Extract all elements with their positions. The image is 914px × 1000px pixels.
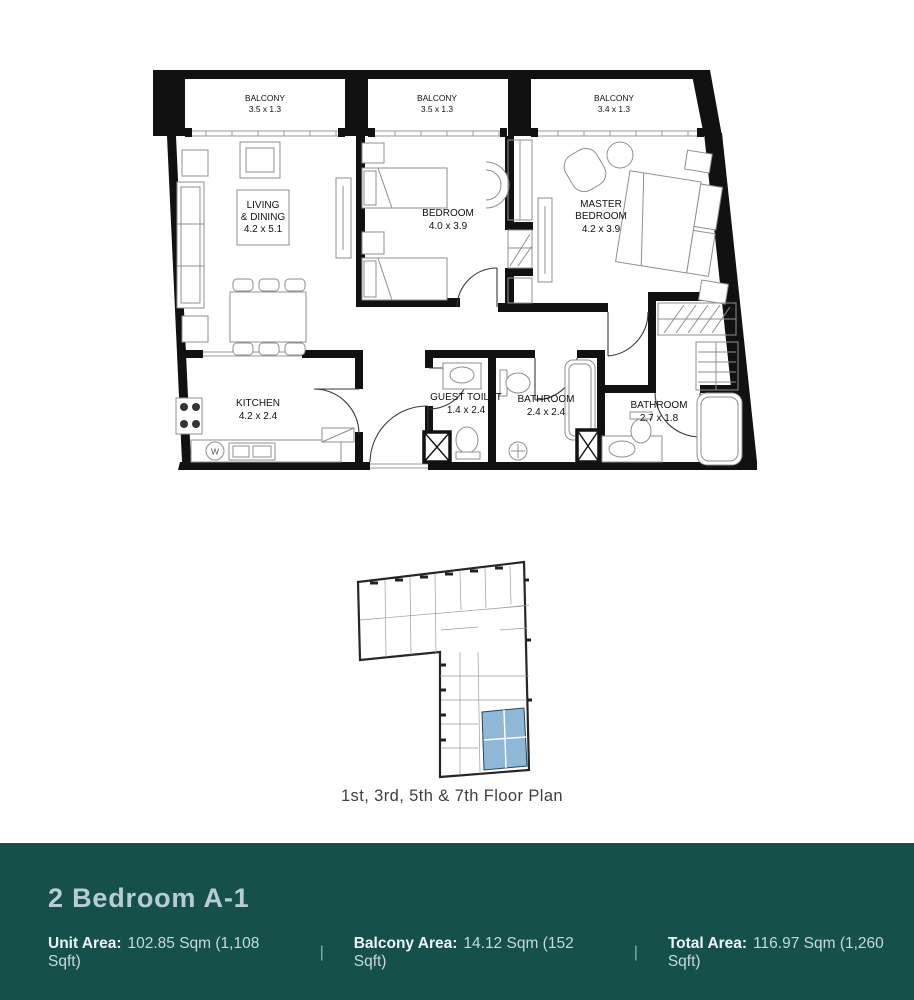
svg-text:1.4 x 2.4: 1.4 x 2.4 xyxy=(447,405,486,416)
unit-title: 2 Bedroom A-1 xyxy=(48,883,914,914)
svg-text:2.4 x 2.4: 2.4 x 2.4 xyxy=(527,407,566,418)
master-bedroom-label: MASTER xyxy=(580,199,622,210)
svg-text:W: W xyxy=(211,447,219,457)
balcony1-dims: 3.5 x 1.3 xyxy=(249,104,281,114)
master-bedroom-furniture xyxy=(538,142,738,390)
svg-text:& DINING: & DINING xyxy=(241,212,286,223)
area-summary: Unit Area:102.85 Sqm (1,108 Sqft) | Balc… xyxy=(48,935,914,971)
master-bathroom-label: BATHROOM xyxy=(630,400,687,411)
guest-toilet-label: GUEST TOILET xyxy=(430,392,502,403)
floor-plan-page: W BALCONY 3.5 x 1.3 BALCONY 3.5 x 1.3 xyxy=(0,0,914,1000)
balcony2-label: BALCONY xyxy=(417,93,457,103)
kitchen-label: KITCHEN xyxy=(236,398,280,409)
svg-text:2.7 x 1.8: 2.7 x 1.8 xyxy=(640,413,679,424)
svg-text:4.0 x 3.9: 4.0 x 3.9 xyxy=(429,221,468,232)
shaft-x-icon xyxy=(577,430,599,462)
unit-area: Unit Area:102.85 Sqm (1,108 Sqft) xyxy=(48,935,290,971)
bedroom-label: BEDROOM xyxy=(422,208,474,219)
summary-banner: 2 Bedroom A-1 Unit Area:102.85 Sqm (1,10… xyxy=(0,843,914,1000)
svg-text:4.2 x 3.9: 4.2 x 3.9 xyxy=(582,224,621,235)
living-room-furniture xyxy=(177,142,351,355)
highlighted-unit xyxy=(482,708,527,770)
balcony3-dims: 3.4 x 1.3 xyxy=(598,104,630,114)
balcony1-label: BALCONY xyxy=(245,93,285,103)
unit-floor-plan: W BALCONY 3.5 x 1.3 BALCONY 3.5 x 1.3 xyxy=(0,0,914,845)
balcony3-label: BALCONY xyxy=(594,93,634,103)
shaft-x-icon xyxy=(424,432,450,462)
svg-text:BEDROOM: BEDROOM xyxy=(575,211,627,222)
wardrobe-hatch xyxy=(508,230,532,268)
balcony-area: Balcony Area:14.12 Sqm (152 Sqft) xyxy=(354,935,604,971)
key-plan-caption: 1st, 3rd, 5th & 7th Floor Plan xyxy=(341,787,563,805)
separator: | xyxy=(634,944,638,962)
bathroom-label: BATHROOM xyxy=(517,394,574,405)
key-plan: 1st, 3rd, 5th & 7th Floor Plan xyxy=(341,562,563,805)
svg-text:4.2 x 5.1: 4.2 x 5.1 xyxy=(244,224,283,235)
living-dining-label: LIVING xyxy=(247,200,280,211)
svg-text:4.2 x 2.4: 4.2 x 2.4 xyxy=(239,411,278,422)
balcony2-dims: 3.5 x 1.3 xyxy=(421,104,453,114)
separator: | xyxy=(320,944,324,962)
total-area: Total Area:116.97 Sqm (1,260 Sqft) xyxy=(668,935,914,971)
